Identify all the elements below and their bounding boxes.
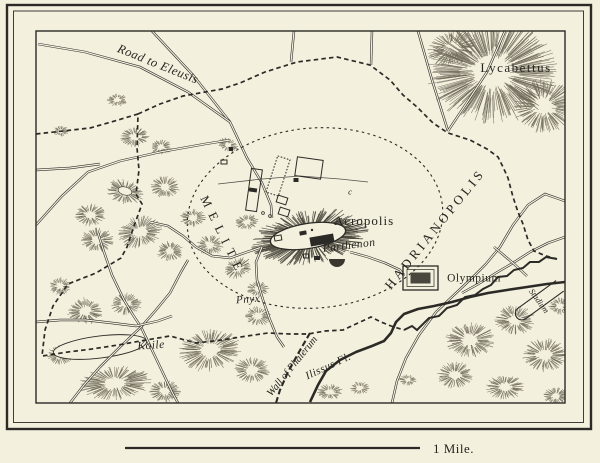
athens-map-figure: Road to EleusisLycabettusMELITEAcropolis… [0,0,600,463]
label-olympium: Olympium [447,273,501,285]
label-koile: Koile [136,339,165,353]
label-map-mark-c: c [348,187,352,197]
summit-mark [311,229,313,231]
acropolis-building [314,256,320,260]
scale-bar-label: 1 Mile. [433,441,474,456]
agora-building [229,147,233,151]
agora-building [294,178,299,182]
map-svg: Road to EleusisLycabettusMELITEAcropolis… [0,0,600,463]
label-pnyx: Pnyx [235,293,261,307]
label-lycabettus: Lycabettus [480,60,551,75]
olympium-temple [411,273,431,284]
label-acropolis: Acropolis [334,213,394,228]
